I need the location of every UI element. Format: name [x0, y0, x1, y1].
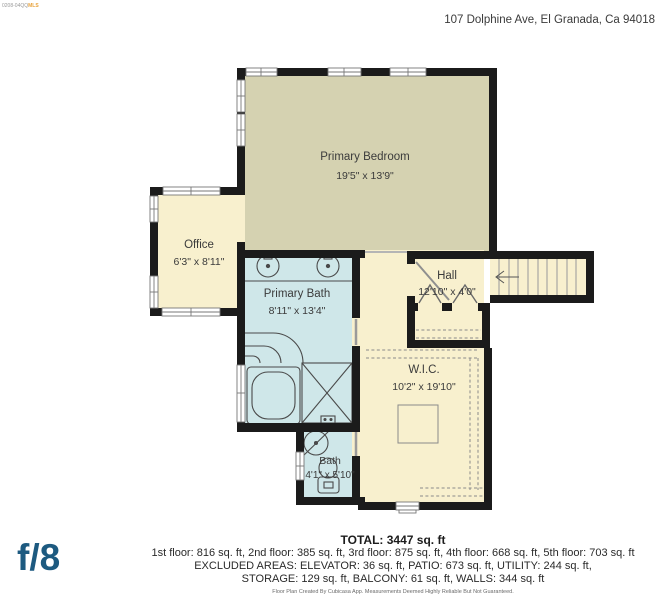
- room-label-bath: Bath: [319, 455, 341, 467]
- primary-bedroom-fill: [245, 76, 489, 252]
- room-fills: [158, 76, 586, 502]
- f8-logo: f/8: [17, 538, 60, 578]
- floor-plan-page: { "watermark": { "code": "0208-04QQ", "b…: [0, 0, 666, 600]
- room-dims-office: 6'3" x 8'11": [174, 256, 225, 268]
- office-fill: [158, 195, 245, 308]
- room-label-hall: Hall: [437, 270, 457, 282]
- primary-bath-window: [237, 365, 245, 422]
- total-area: TOTAL: 3447 sq. ft: [120, 533, 666, 547]
- bedroom-top-windows: [246, 68, 426, 76]
- bath-window: [296, 452, 304, 480]
- room-dims-hall: 12'10" x 4'0": [418, 286, 476, 298]
- excluded-areas-line1: EXCLUDED AREAS: ELEVATOR: 36 sq. ft, PAT…: [120, 560, 666, 573]
- room-label-wic: W.I.C.: [408, 364, 439, 376]
- floor-plan-svg: [0, 0, 666, 600]
- property-address: 107 Dolphine Ave, El Granada, Ca 94018: [444, 14, 655, 26]
- cubicasa-disclaimer: Floor Plan Created By Cubicasa App. Meas…: [120, 589, 666, 595]
- room-dims-bath: 4'1" x 5'10": [305, 470, 354, 481]
- room-dims-primary-bath: 8'11" x 13'4": [269, 305, 326, 317]
- mls-logo: MLS: [28, 3, 39, 9]
- room-label-primary-bedroom: Primary Bedroom: [320, 151, 409, 163]
- primary-bath-fill: [245, 258, 352, 423]
- room-dims-wic: 10'2" x 19'10": [392, 381, 455, 393]
- mls-watermark-code: 0208-04QQ: [2, 3, 28, 9]
- area-summary: TOTAL: 3447 sq. ft 1st floor: 816 sq. ft…: [120, 533, 666, 585]
- room-label-primary-bath: Primary Bath: [264, 288, 330, 300]
- wic-window: [396, 502, 419, 513]
- room-dims-primary-bedroom: 19'5" x 13'9": [336, 170, 394, 182]
- floor-areas: 1st floor: 816 sq. ft, 2nd floor: 385 sq…: [120, 547, 666, 560]
- excluded-areas-line2: STORAGE: 129 sq. ft, BALCONY: 61 sq. ft,…: [120, 573, 666, 586]
- room-label-office: Office: [184, 239, 214, 251]
- mls-watermark: 0208-04QQMLS: [2, 3, 39, 9]
